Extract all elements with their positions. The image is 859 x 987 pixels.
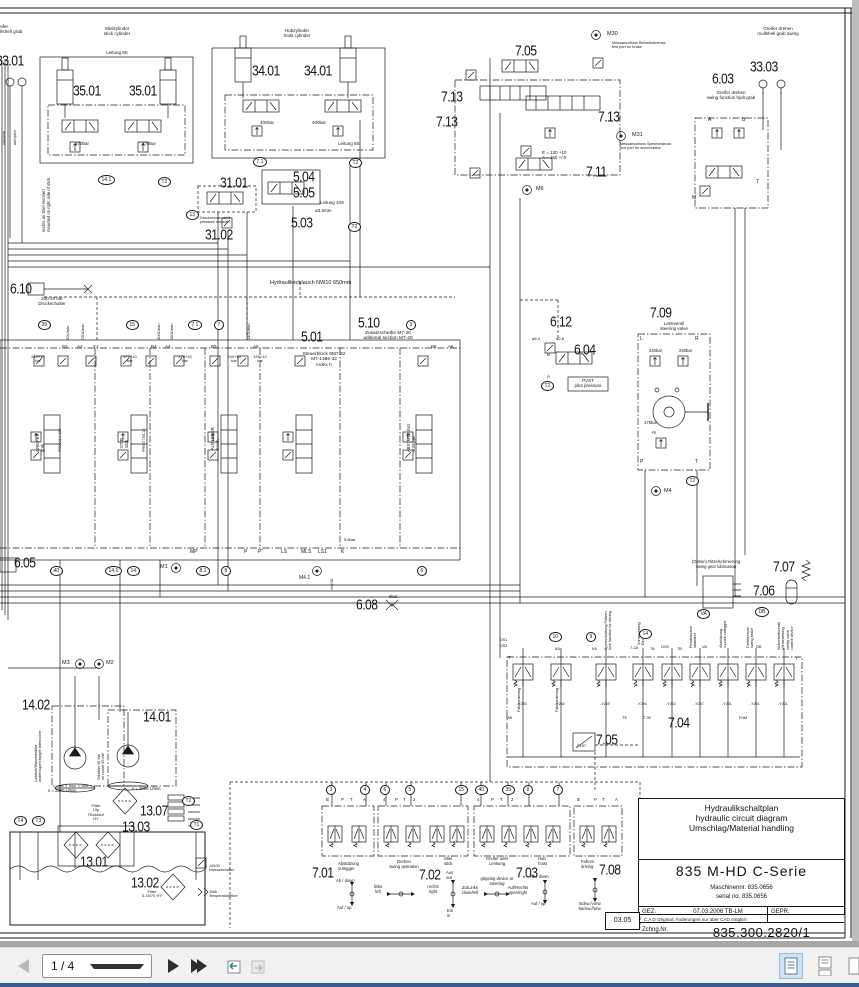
continuous-scroll-icon — [818, 956, 832, 976]
chevron-down-icon — [90, 964, 145, 969]
circled-ref-label: DB — [755, 607, 769, 617]
diagram-label: MLS — [301, 550, 311, 556]
diagram-label: P — [491, 798, 494, 803]
diagram-label: -Y291 — [722, 702, 732, 706]
circled-ref-label: T2 — [686, 476, 699, 486]
diagram-label: Greifer drehen swing function hydr.grab — [707, 90, 756, 100]
diagram-label: LS1 — [318, 550, 327, 556]
diagram-label: M30 — [607, 31, 618, 37]
diagram-label: M — [692, 196, 696, 202]
diagram-label: 7.05 — [515, 42, 536, 59]
two-page-icon — [848, 957, 859, 975]
diagram-label: MP — [190, 550, 198, 556]
title-line-en: hydraulic circuit diagram — [639, 813, 844, 823]
circled-ref-label: VA — [697, 609, 710, 619]
circled-ref-label: 14 — [127, 566, 140, 576]
circled-ref-label: 39 — [38, 320, 51, 330]
page-indicator: 1 / 4 — [43, 959, 90, 973]
previous-view-button[interactable] — [220, 953, 246, 979]
diagram-label: -Y264 — [555, 702, 565, 706]
diagram-label: rechts an Stiel montiert mounted on righ… — [42, 178, 51, 232]
circled-ref-label: 14.1 — [98, 175, 115, 185]
circled-ref-label: 14.1 — [105, 566, 122, 576]
diagram-label: Messanschluss Betriebsbremse test port f… — [612, 41, 666, 50]
circled-ref-label: 4 — [360, 785, 370, 795]
diagram-label: 370+10 bar — [123, 355, 136, 364]
diagram-label: B3 — [62, 344, 68, 349]
diagram-label: -Y260 — [517, 702, 527, 706]
circled-ref-label: 8.1 — [196, 566, 210, 576]
viewer-toolbar: 1 / 4 — [0, 947, 859, 984]
circled-ref-label: 13 — [186, 210, 199, 220]
circled-ref-label: T2 — [158, 177, 171, 187]
diagram-label: 5.10 — [358, 314, 379, 331]
diagram-label: 240bar — [679, 349, 692, 354]
diagram-label: MB — [506, 716, 512, 720]
page-number-select[interactable]: 1 / 4 — [42, 954, 152, 978]
diagram-label: 14.02 — [22, 696, 50, 713]
diagram-label: links left — [374, 885, 382, 894]
diagram-label: 13.03 — [122, 818, 150, 835]
diagram-label: 5.5bar — [344, 538, 355, 542]
diagram-label: n = 2300 U/min — [48, 789, 77, 794]
circled-ref-label: 5 — [405, 785, 415, 795]
diagram-label: T — [756, 180, 759, 186]
diagram-label: 7.01 — [312, 864, 333, 881]
circled-ref-label: T3 — [32, 816, 45, 826]
cad-note: C A D Original: Änderungen nur über CAD … — [642, 917, 749, 922]
diagram-label: Fahren/driving — [555, 688, 559, 712]
diagram-label: DS1 — [500, 638, 507, 642]
diagram-label: 180L/min — [170, 324, 174, 340]
diagram-label: Stiel stick — [444, 857, 452, 866]
diagram-label: Sperrschaltung Fahren lock function for … — [604, 611, 613, 650]
diagram-label: zu/close — [2, 131, 6, 145]
diagram-label: 5.04 — [293, 168, 314, 185]
diagram-label: 400bar — [312, 120, 326, 125]
circled-ref-label: 7.1 — [188, 320, 202, 330]
pdf-viewer-window: Greifer müllshell grab33.01Stielzylinder… — [0, 0, 859, 987]
circled-ref-label: 39 — [502, 785, 515, 795]
circled-ref-label: 40 — [475, 785, 488, 795]
diagram-label: M4.1 — [299, 576, 310, 582]
revision-box: 03.05 — [605, 912, 640, 930]
circled-ref-label: 15 — [126, 320, 139, 330]
diagram-label: 6A — [555, 647, 560, 651]
diagram-label: P — [640, 460, 643, 466]
diagram-label: Ab / down — [336, 879, 355, 884]
diagram-label: R — [695, 337, 699, 343]
previous-page-icon — [18, 959, 29, 973]
previous-page-button[interactable] — [10, 953, 36, 979]
diagram-label: DB — [756, 645, 762, 649]
diagram-label: 7B — [677, 647, 682, 651]
diagram-label: rückw./vorw. backw./forw. — [579, 902, 602, 911]
diagram-label: 370bar — [142, 141, 156, 146]
circled-ref-label: 7 — [214, 320, 224, 330]
diagram-label: A — [547, 374, 550, 379]
diagram-label: -P107 — [576, 744, 586, 748]
diagram-label: Lenkventil steering valve — [660, 321, 688, 331]
circled-ref-label: T2 — [349, 158, 362, 168]
diagram-label: P — [594, 798, 597, 803]
diagram-label: A — [615, 798, 618, 803]
diagram-label: rechts right — [427, 885, 438, 894]
diagram-label: A — [708, 118, 711, 124]
circled-ref-label: 7 — [553, 785, 563, 795]
diagram-label: 6bar — [389, 595, 397, 600]
diagram-label: 190+10 bar — [253, 355, 266, 364]
diagram-label: P'' — [258, 550, 263, 556]
title-block: Hydraulikschaltplan hydraulic circuit di… — [638, 798, 845, 915]
diagram-label: ø6.3 — [532, 337, 540, 341]
diagram-label: ø3.5mm — [315, 208, 332, 213]
diagram-label: P4M — [739, 716, 747, 720]
diagram-label: Pendelachse stabilizer — [689, 626, 698, 648]
diagram-label: Abstützung outrigger — [338, 862, 359, 871]
diagram-label: -B66 Temperaturgeber — [209, 890, 238, 899]
diagram-label: 7.06 — [753, 582, 774, 599]
diagram-label: -Y261 — [750, 702, 760, 706]
diagram-label: 2 — [413, 798, 415, 803]
diagram-label: Fahren/driving — [517, 688, 521, 712]
diagram-label: DX5 — [661, 645, 669, 649]
diagram-label: Hydraulikschlauch NW10 650mm — [270, 280, 351, 286]
circled-ref-label: 8 — [221, 566, 231, 576]
diagram-label: T — [602, 798, 605, 803]
machine-model: 835 M-HD C-Serie — [639, 863, 844, 883]
diagram-label: A3 — [77, 344, 83, 349]
diagram-label: B — [326, 798, 329, 803]
diagram-label: T — [695, 460, 698, 466]
diagram-label: Aus out — [446, 871, 453, 880]
diagram-label: +5 — [651, 431, 656, 436]
next-view-button[interactable] — [246, 953, 272, 979]
diagram-label: A5 — [253, 344, 259, 349]
circled-ref-label: T2 — [348, 222, 361, 232]
diagram-label: (Option) Ritzelschmierung swing gear lub… — [692, 560, 740, 569]
diagram-label: AUSLEGER boom — [211, 427, 220, 450]
diagram-label: 35.01 — [73, 82, 101, 99]
diagram-label: 9A — [592, 647, 597, 651]
diagram-label: T — [403, 798, 406, 803]
diagram-label: 7.05 — [596, 731, 617, 748]
diagram-label: A4 — [165, 344, 171, 349]
diagram-label: 370+10 bar — [178, 355, 191, 364]
diagram-label: Greifer drehen mullshell grab swing — [757, 26, 798, 36]
diagram-label: 35.01 — [129, 82, 157, 99]
machine-number: Maschinennr. 835.0656 — [639, 884, 844, 893]
diagram-label: Zu/Links close/left — [462, 886, 479, 895]
document-viewport[interactable]: Greifer müllshell grab33.01Stielzylinder… — [0, 0, 859, 941]
diagram-label: 175bar — [644, 421, 657, 426]
next-page-icon — [168, 959, 179, 973]
diagram-label: 7.13 — [441, 88, 462, 105]
diagram-label: DS2 — [500, 644, 507, 648]
diagram-label: 6.05 — [14, 554, 35, 571]
diagram-label: Zusatzscheibe M7-20 aditional section M7… — [363, 331, 412, 342]
diagram-label: 6.08 — [356, 596, 377, 613]
diagram-label: 6.12 — [550, 313, 571, 330]
diagram-label: Drehbremse swing brake — [746, 627, 755, 648]
diagram-label: PVST pilot pressure — [574, 378, 601, 388]
diagram-label: 210+10 bar — [31, 355, 44, 364]
diagram-label: Leitung 8S — [106, 50, 128, 55]
window-bottom-edge — [0, 983, 859, 987]
diagram-label: n = 2000 U/min — [132, 787, 161, 792]
diagram-label: 7.02 — [419, 866, 440, 883]
diagram-label: 7.2A — [630, 646, 638, 650]
diagram-label: 34.01 — [304, 62, 332, 79]
diagram-label: LS — [281, 550, 287, 556]
diagram-label: Fahren driving — [581, 860, 594, 869]
diagram-label: -Y262 — [666, 702, 676, 706]
diagram-label: M31 — [632, 132, 643, 138]
diagram-label: 33.01 — [0, 52, 24, 69]
diagram-label: 240+10 bar — [227, 355, 240, 364]
diagram-label: 5.03 — [291, 214, 312, 231]
diagram-label: 200-20 bar Druckschalter — [38, 296, 66, 306]
diagram-label: 7.07 — [773, 558, 794, 575]
diagram-label: 33.03 — [750, 58, 778, 75]
diagram-label: ABSTÜTZUNG outrigger — [407, 424, 416, 452]
diagram-label: Drehen swing operation — [389, 860, 418, 869]
diagram-label: 4 — [477, 798, 479, 803]
serial-number: serial no. 835.0656 — [639, 893, 844, 902]
title-line-de: Hydraulikschaltplan — [639, 803, 844, 813]
diagram-label: Y1 — [93, 344, 99, 349]
circled-ref-label: 7.1 — [253, 157, 267, 167]
diagram-label: Messanschluss Speicherdruck test port fo… — [620, 142, 671, 151]
circled-ref-label: T2 — [541, 381, 554, 391]
circled-ref-label: 9 — [586, 632, 596, 642]
diagram-label: 6.04 — [574, 341, 595, 358]
diagram-label: PR01014-180 — [58, 429, 62, 452]
circled-ref-label: 40 — [50, 566, 63, 576]
last-page-button[interactable] — [186, 953, 212, 979]
checked-label: GEPR. — [767, 907, 844, 922]
diagram-label: 31.02 — [205, 226, 233, 243]
diagram-label: 400L/min — [157, 324, 161, 340]
diagram-label: Ab / down — [530, 875, 549, 880]
diagram-label: -M100 Niveauschalter — [209, 864, 234, 873]
diagram-label: NW40 — [330, 579, 334, 590]
diagram-label: 7.09 — [650, 304, 671, 321]
diagram-label: 230L/min — [81, 324, 85, 340]
diagram-label: A6 — [448, 344, 454, 349]
next-page-button[interactable] — [160, 953, 186, 979]
circled-ref-label: 6 — [417, 566, 427, 576]
diagram-label: T — [500, 798, 503, 803]
diagram-label: M1 — [160, 564, 168, 570]
diagram-label: Druckminderventil pressure reducer — [200, 216, 230, 225]
diagram-label: B4 — [151, 344, 157, 349]
diagram-label: T — [350, 798, 353, 803]
diagram-label: -Y249 — [600, 702, 610, 706]
diagram-label: Ölkühler 95 kW oil cooler 95 kW — [97, 753, 106, 780]
diagram-label: Greifer oder Lenkung — [486, 857, 508, 866]
single-page-view-button[interactable] — [779, 953, 803, 979]
circled-ref-label: 3 — [326, 785, 336, 795]
diagram-label: 370bar — [75, 141, 89, 146]
circled-ref-label: 6 — [380, 785, 390, 795]
circled-ref-label: 8 — [523, 785, 533, 795]
next-view-icon — [249, 957, 269, 975]
diagram-label: auf/open — [13, 130, 17, 145]
diagram-label: TE — [622, 716, 627, 720]
diagram-label: 2 — [511, 798, 513, 803]
diagram-label: 90L/min — [66, 326, 70, 340]
diagram-label: K — [341, 550, 344, 556]
diagram-label: Ein in — [447, 909, 453, 918]
diagram-label: L — [640, 337, 643, 343]
circled-ref-label: T2 — [182, 796, 195, 806]
diagram-label: 14.01 — [143, 708, 171, 725]
diagram-label: Filter 0.15/75 HY — [142, 890, 162, 899]
diagram-label: Auf / up — [337, 906, 351, 911]
diagram-label: -Y201 — [778, 702, 788, 706]
diagram-label: T — [508, 656, 511, 661]
diagram-label: ø2.8 — [556, 337, 564, 341]
circled-ref-label: 10 — [549, 632, 562, 642]
diagram-label: 7.04 — [668, 714, 689, 731]
diagram-label: 6.03 — [712, 70, 733, 87]
diagram-label: 7.13 — [598, 108, 619, 125]
title-line-application: Umschlag/Material handling — [639, 823, 844, 833]
diagram-label: -Y294 — [637, 702, 647, 706]
circled-ref-label: 14 — [639, 629, 652, 639]
diagram-label: Leitung 8S — [338, 141, 360, 146]
diagram-label: 7.11 — [586, 163, 607, 180]
drawing-number-label: Zchng.Nr. — [639, 923, 679, 941]
diagram-label: VA — [702, 645, 707, 649]
diagram-label: M6 — [536, 186, 544, 192]
diagram-label: Auf / up — [531, 902, 545, 907]
diagram-label: A — [363, 798, 366, 803]
diagram-label: M3 — [62, 660, 70, 666]
diagram-label: 31.01 — [220, 174, 248, 191]
diagram-label: 7.08 — [599, 861, 620, 878]
diagram-label: 7.2E — [643, 716, 651, 720]
diagram-label: E = 120 +10 A = 150 +/-5 — [542, 150, 567, 160]
diagram-label: B — [547, 352, 550, 357]
diagram-label: Sicherheitsventil Vorsteuerung safety va… — [777, 622, 794, 650]
diagram-label: B — [742, 118, 745, 124]
diagram-label: B — [577, 798, 580, 803]
diagram-label: M2 — [106, 660, 114, 666]
circled-ref-label: T4 — [14, 816, 27, 826]
diagram-label: B5 — [211, 344, 217, 349]
diagram-label: Abstützung 4-point outrigger — [719, 620, 728, 648]
diagram-label: Filter 10µ Rücklauf HY — [88, 804, 104, 822]
diagram-label: Ladeluft/Wasserkühler water/supercharger… — [34, 731, 43, 783]
circled-ref-label: 15 — [455, 785, 468, 795]
diagram-label: GREIFER grab — [36, 433, 45, 452]
diagram-label: 240bar — [649, 349, 662, 354]
diagram-label: P — [244, 550, 247, 556]
pdf-page: Greifer müllshell grab33.01Stielzylinder… — [0, 0, 852, 941]
diagram-label: PR007759-15 — [142, 429, 146, 452]
diagram-label: 140L/min — [247, 324, 251, 340]
diagram-label: 5.05 — [293, 184, 314, 201]
continuous-view-button[interactable] — [813, 953, 837, 979]
diagram-label: Steuerblock 6M7-22 M7-1386-32 index h — [303, 352, 346, 368]
diagram-label: 13.01 — [80, 853, 108, 870]
circled-ref-label: T1 — [190, 820, 203, 830]
diagram-label: T — [795, 657, 798, 662]
diagram-label: Hubzylinder hoist cylinder — [284, 28, 311, 38]
drawing-number: 835.300.2820/1 — [679, 923, 844, 941]
diagram-label: -Y257 — [694, 702, 704, 706]
diagram-label: Auf/Rechts open/right — [508, 886, 528, 895]
previous-view-icon — [223, 957, 243, 975]
diagram-label: Hub hoist — [538, 857, 547, 866]
diagram-label: 13.07 — [140, 802, 168, 819]
diagram-label: 5.01 — [301, 328, 322, 345]
facing-pages-view-button[interactable] — [847, 953, 859, 979]
circled-ref-label: 3 — [406, 320, 416, 330]
single-page-icon — [784, 957, 798, 975]
diagram-label: 6.10 — [10, 280, 31, 297]
diagram-label: M4 — [664, 488, 672, 494]
diagram-label: 34.01 — [252, 62, 280, 79]
diagram-label: P — [341, 798, 344, 803]
diagram-label: STIEL stick — [120, 436, 129, 448]
diagram-label: Greifer müllshell grab — [0, 24, 22, 34]
diagram-label: 400bar — [260, 120, 274, 125]
diagram-label: Stielzylinder stick cylinder — [104, 26, 130, 36]
diagram-label: TA — [650, 647, 655, 651]
diagram-label: B6 — [431, 344, 437, 349]
diagram-label: 7.13 — [436, 113, 457, 130]
diagram-label: 4 — [383, 798, 385, 803]
diagram-label: Leitung 10S — [320, 200, 344, 205]
diagram-label: P — [395, 798, 398, 803]
